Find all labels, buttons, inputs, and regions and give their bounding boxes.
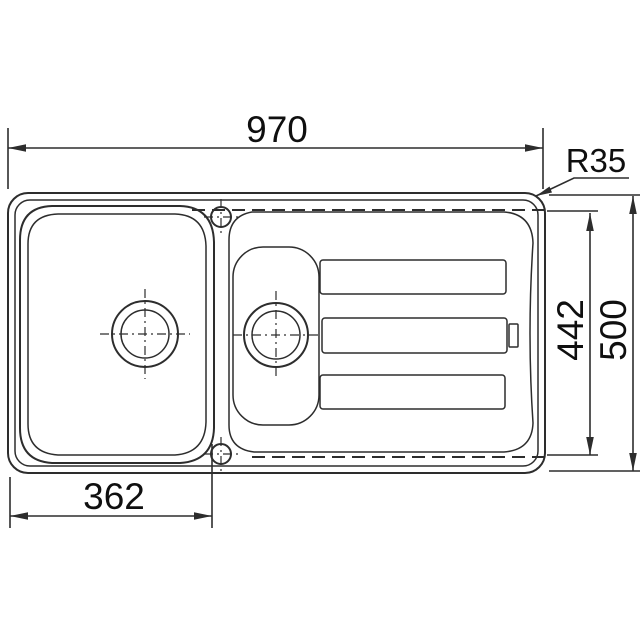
dimension-main-bowl-width: 362 — [10, 444, 212, 528]
technical-drawing: 970 R35 442 500 362 — [0, 0, 640, 640]
tap-hole-top — [204, 199, 238, 236]
dimension-label-500: 500 — [593, 299, 634, 361]
dimension-bowl-area-depth: 442 — [547, 211, 598, 455]
arrowhead-right-icon — [194, 512, 212, 520]
arrowhead-up-icon — [629, 196, 637, 214]
arrowhead-up-icon — [586, 213, 594, 231]
drainer-grooves — [320, 260, 518, 409]
drainer-groove-bottom — [320, 375, 505, 409]
arrowhead-left-icon — [10, 512, 28, 520]
dimension-label-970: 970 — [246, 109, 308, 150]
arrowhead-down-icon — [586, 437, 594, 455]
dimension-label-442: 442 — [550, 299, 591, 361]
drainer-groove-top — [320, 260, 506, 294]
arrowhead-down-icon — [629, 453, 637, 471]
arrowhead-right-icon — [525, 144, 543, 152]
main-bowl-drain — [100, 289, 190, 379]
dimension-corner-radius: R35 — [536, 142, 629, 196]
drainer-groove-notch — [509, 324, 518, 347]
sink-body — [8, 193, 545, 473]
arrowhead-left-icon — [8, 144, 26, 152]
leader-line — [536, 178, 629, 196]
dimension-overall-width: 970 — [8, 109, 543, 189]
dimension-label-r35: R35 — [566, 142, 627, 179]
drainer-deck-outline — [229, 212, 533, 452]
half-bowl-drain — [233, 291, 319, 379]
sink-dimension-diagram: 970 R35 442 500 362 — [0, 0, 640, 640]
drainer-groove-middle — [322, 318, 507, 353]
dimension-label-362: 362 — [83, 476, 145, 517]
